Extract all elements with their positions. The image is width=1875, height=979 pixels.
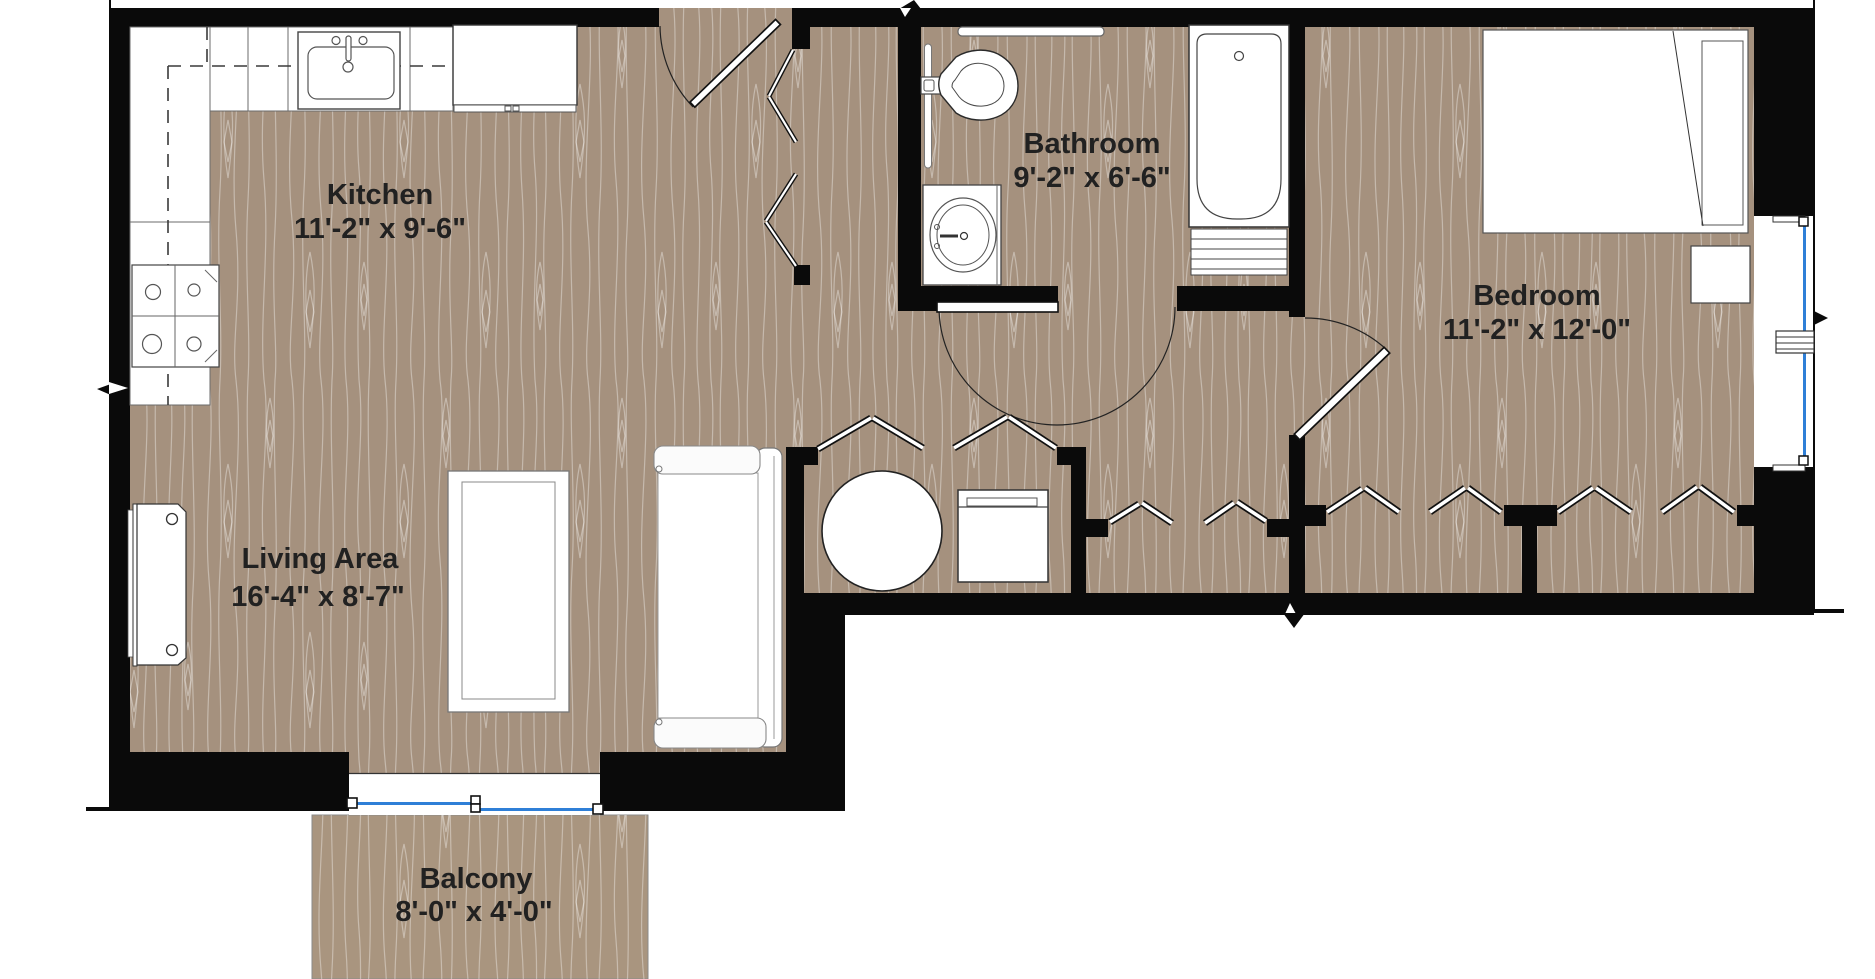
svg-text:Kitchen: Kitchen <box>327 179 433 211</box>
svg-text:16'-4" x 8'-7": 16'-4" x 8'-7" <box>231 581 405 613</box>
svg-text:Living Area: Living Area <box>242 543 400 575</box>
svg-text:11'-2" x 9'-6": 11'-2" x 9'-6" <box>294 213 466 245</box>
svg-text:8'-0" x 4'-0": 8'-0" x 4'-0" <box>395 896 552 928</box>
svg-text:Bedroom: Bedroom <box>1473 280 1600 312</box>
svg-text:11'-2" x 12'-0": 11'-2" x 12'-0" <box>1443 314 1631 346</box>
svg-text:9'-2" x 6'-6": 9'-2" x 6'-6" <box>1013 162 1170 194</box>
svg-text:Balcony: Balcony <box>420 863 533 895</box>
svg-text:Bathroom: Bathroom <box>1024 128 1161 160</box>
